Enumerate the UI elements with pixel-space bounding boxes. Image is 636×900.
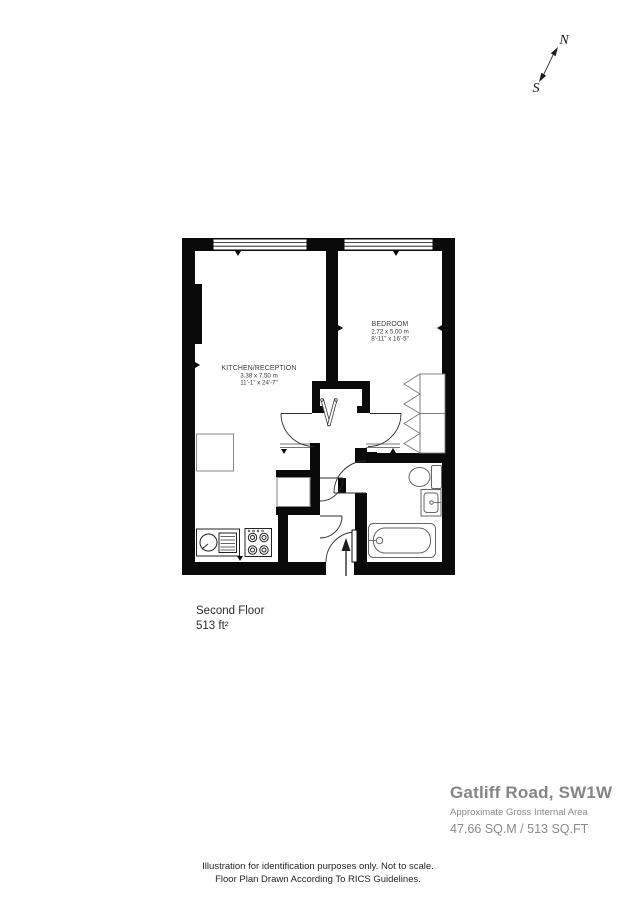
bedroom-size-imperial: 8'-11" x 16'-5" [371,336,409,343]
compass-arrowhead-south-icon [539,73,546,82]
wall-bottom-left [182,562,326,575]
compass-south-label: S [533,81,540,96]
kitchen-reception-size-metric: 3.38 x 7.50 m [240,373,278,380]
compass: N S [533,33,570,96]
floor-name: Second Floor [196,605,264,617]
door-kitchen-reception [281,414,314,447]
bath [369,524,436,558]
wall-lobby-left [278,515,288,562]
wall-room-divider [326,251,338,381]
toilet [409,466,442,489]
basin [421,490,441,517]
kitchen-reception-size-imperial: 11'-1" x 24'-7" [240,380,278,387]
bedroom-size-metric: 2.72 x 5.00 m [371,329,409,336]
opening-thresholds [280,444,400,448]
disclaimer-line-2: Floor Plan Drawn According To RICS Guide… [0,874,636,887]
compass-arrow-line [544,55,553,75]
kitchen-reception-name: KITCHEN/RECEPTION [222,365,297,372]
compass-arrowhead-north-icon [551,47,558,56]
hob [245,529,272,557]
kitchen-counter [197,434,234,471]
closet-wall-top [276,470,320,477]
wardrobe [404,374,445,453]
window-kitchen [213,239,307,250]
compass-north-label: N [558,33,569,48]
cupboard-wall-left [312,389,320,406]
hall-closet [277,478,310,507]
bedroom-name: BEDROOM [372,321,409,328]
floor-label: Second Floor 513 ft² [196,605,264,632]
door-lobby [320,516,342,538]
gross-area-value: 47.66 SQ.M / 513 SQ.FT [450,822,612,836]
floor-area: 513 ft² [196,620,264,632]
door-bedroom [368,414,401,447]
floorplan-page: N S [0,0,636,900]
entrance-arrow-icon [342,538,351,576]
window-bedroom [344,239,433,250]
gross-area-label: Approximate Gross Internal Area [450,807,612,818]
wall-pillar [193,284,202,344]
kitchen-sink [197,529,240,556]
disclaimer-line-1: Illustration for identification purposes… [0,861,636,874]
area-summary: Gatliff Road, SW1W Approximate Gross Int… [450,783,612,836]
cupboard-wall-right [362,389,370,406]
cupboard-wall-top [312,381,370,389]
room-labels: KITCHEN/RECEPTION 3.38 x 7.50 m 11'-1" x… [222,321,409,387]
wall-bottom-right [354,562,455,575]
wall-stub-bedroom [365,452,377,462]
disclaimer: Illustration for identification purposes… [0,861,636,886]
wall-stub-hall-right [357,406,370,413]
property-address: Gatliff Road, SW1W [450,783,612,803]
floor-plan-drawing: N S [0,0,636,900]
closet-wall-bottom [276,507,320,515]
